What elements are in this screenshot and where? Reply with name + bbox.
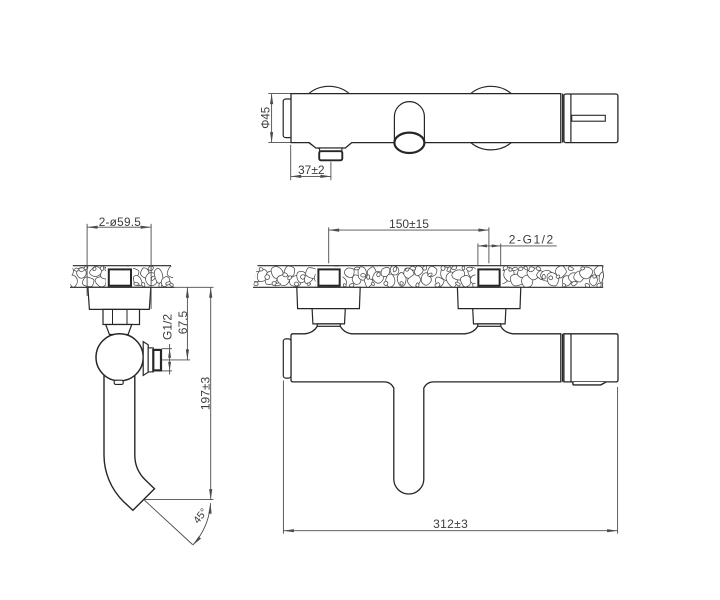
svg-text:150±15: 150±15 (389, 217, 429, 231)
svg-text:Φ45: Φ45 (260, 107, 272, 129)
svg-text:2-ø59.5: 2-ø59.5 (99, 215, 142, 229)
svg-text:67.5: 67.5 (176, 310, 190, 334)
svg-text:2-G1/2: 2-G1/2 (509, 232, 555, 246)
svg-text:197±3: 197±3 (199, 377, 213, 411)
svg-text:37±2: 37±2 (298, 163, 325, 177)
svg-text:G1/2: G1/2 (161, 314, 175, 340)
svg-text:312±3: 312±3 (433, 517, 468, 531)
